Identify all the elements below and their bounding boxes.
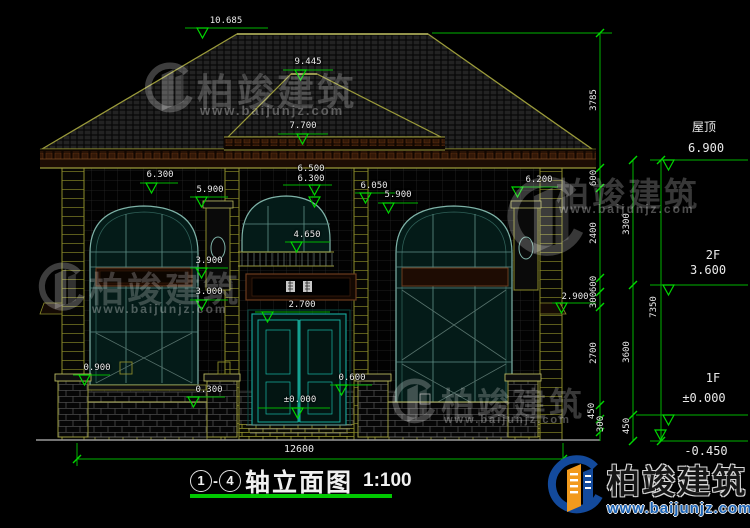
dim-2700: 2.700 bbox=[278, 300, 326, 310]
axis-start-bubble: 1 bbox=[190, 470, 212, 492]
dim-zero-door: ±0.000 bbox=[272, 395, 328, 405]
dim-6300-left: 6.300 bbox=[140, 170, 180, 180]
chain-3600: 3600 bbox=[622, 341, 632, 363]
cad-elevation-screenshot: 柏竣建筑 www.baijunjz.com 柏竣建筑 www.baijunjz.… bbox=[0, 0, 750, 528]
brand-name: 柏竣建筑 bbox=[607, 464, 750, 500]
dim-3000: 3.000 bbox=[188, 287, 230, 297]
title-underline bbox=[190, 494, 392, 498]
entrance-plaque bbox=[246, 274, 356, 300]
level-2f-label: 2F bbox=[698, 248, 728, 262]
chain-2700: 2700 bbox=[589, 342, 599, 364]
dim-6500: 6.500 bbox=[288, 164, 334, 174]
watermark-logo-icon bbox=[388, 378, 438, 430]
brand-logo-icon bbox=[543, 452, 603, 528]
dim-4650: 4.650 bbox=[283, 230, 331, 240]
chain-450b: 450 bbox=[622, 418, 632, 434]
watermark-url: www.baijunjz.com bbox=[444, 414, 571, 426]
watermark-logo-icon bbox=[34, 262, 88, 318]
dim-bay-ridge: 9.445 bbox=[281, 57, 335, 67]
level-1f-label: 1F bbox=[698, 371, 728, 385]
chain-7350: 7350 bbox=[649, 296, 659, 318]
dim-0600: 0.600 bbox=[332, 373, 372, 383]
chain-3785: 3785 bbox=[589, 89, 599, 111]
dim-0900: 0.900 bbox=[76, 363, 118, 373]
chain-3300: 3300 bbox=[622, 213, 632, 235]
brand-logo: 柏竣建筑 www.baijunjz.com bbox=[543, 452, 750, 528]
dim-3900: 3.900 bbox=[188, 256, 230, 266]
watermark-url: www.baijunjz.com bbox=[92, 302, 228, 316]
level-2f-value: 3.600 bbox=[680, 263, 736, 277]
chain-2400: 2400 bbox=[589, 222, 599, 244]
dim-5900-left: 5.900 bbox=[190, 185, 230, 195]
dim-5900-center: 5.900 bbox=[376, 190, 420, 200]
dim-6300-center: 6.300 bbox=[288, 174, 334, 184]
chain-300a: 300 bbox=[589, 292, 599, 308]
axis-range-dash: - bbox=[213, 473, 218, 490]
level-roof-value: 6.900 bbox=[678, 141, 734, 155]
watermark-url: www.baijunjz.com bbox=[200, 103, 344, 118]
level-1f-value: ±0.000 bbox=[674, 391, 734, 405]
dim-ridge: 10.685 bbox=[183, 16, 269, 26]
title-scale: 1:100 bbox=[363, 470, 412, 492]
chain-600a: 600 bbox=[589, 170, 599, 186]
axis-end-bubble: 4 bbox=[219, 470, 241, 492]
dim-0300: 0.300 bbox=[190, 385, 228, 395]
dim-overall-width: 12600 bbox=[267, 444, 331, 455]
level-roof-label: 屋顶 bbox=[684, 118, 724, 135]
chain-300b: 300 bbox=[596, 416, 606, 432]
chain-600b: 600 bbox=[589, 276, 599, 292]
brand-url: www.baijunjz.com bbox=[607, 500, 750, 517]
watermark-logo-icon bbox=[140, 62, 196, 120]
dim-bay-eave: 7.700 bbox=[276, 121, 330, 131]
dim-6200: 6.200 bbox=[518, 175, 560, 185]
